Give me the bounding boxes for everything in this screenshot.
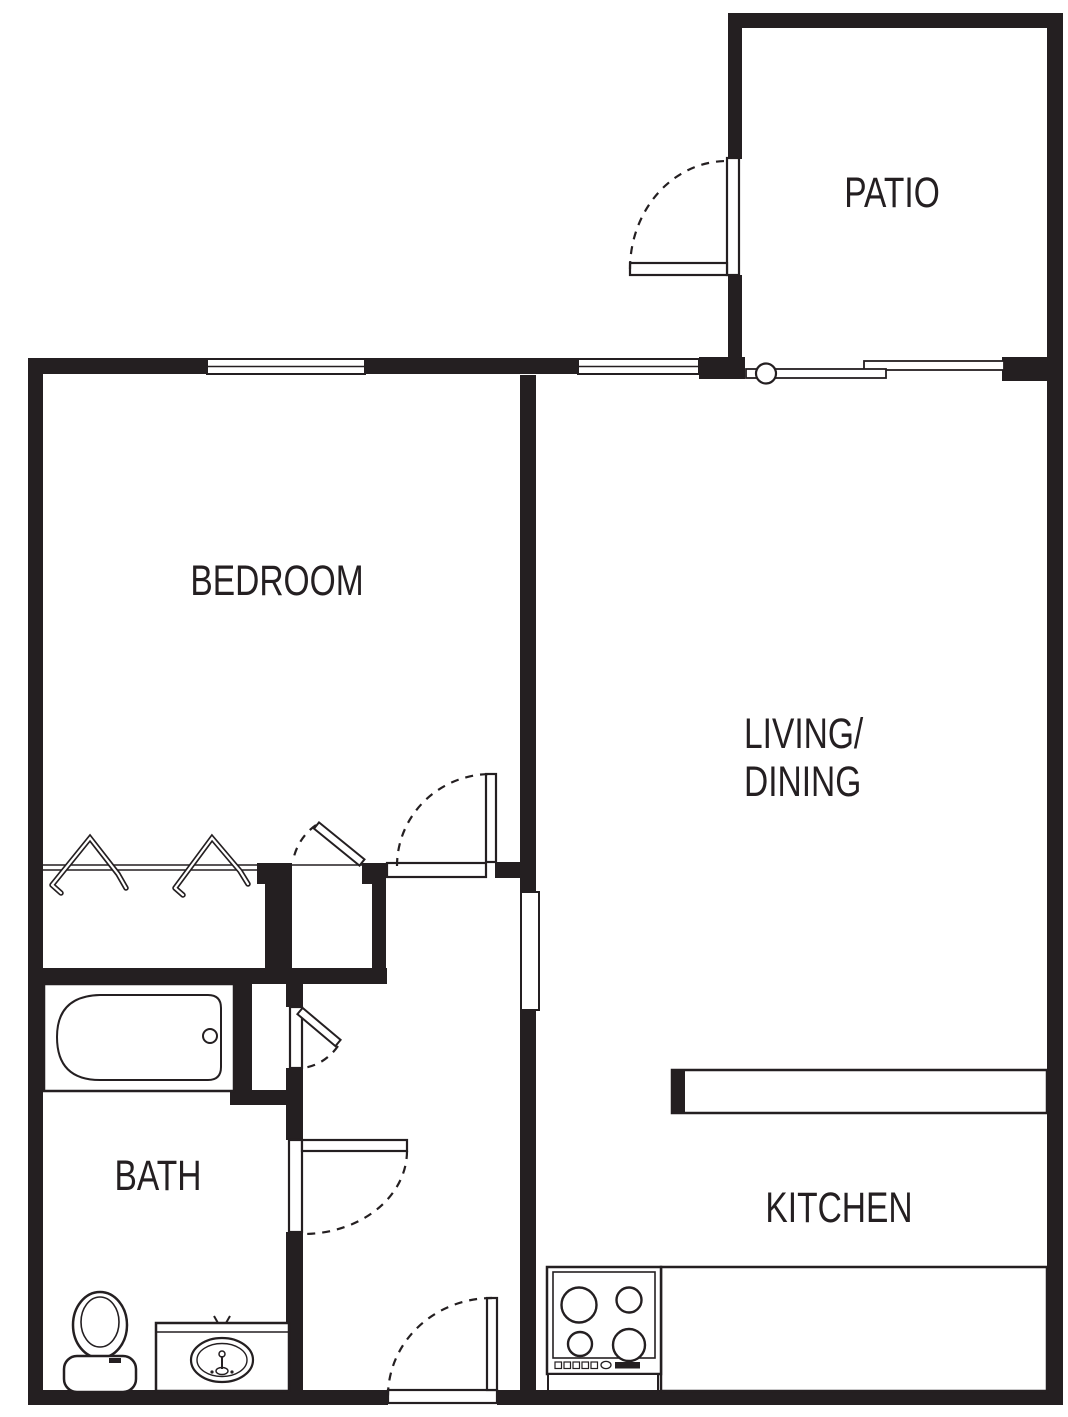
entry-door-open-leaf <box>630 263 727 275</box>
burner <box>562 1288 597 1323</box>
right-exterior-wall <box>1047 13 1063 1405</box>
patio-top-wall <box>728 13 1063 28</box>
stove-controls <box>555 1361 640 1368</box>
closet-right-wall <box>372 884 386 970</box>
toilet-tank <box>64 1356 136 1392</box>
left-exterior-wall <box>28 358 43 1405</box>
hall-door-closed-slab <box>388 1390 497 1403</box>
hall-wall-segment-a <box>286 984 303 1007</box>
burner <box>613 1329 645 1361</box>
patio-label: PATIO <box>844 169 940 217</box>
bedroom-living-divider-wall <box>520 375 536 1390</box>
bath-door-closed-slab <box>289 1140 302 1232</box>
living-dining-label-line2: DINING <box>744 758 861 806</box>
patio-left-wall-upper <box>728 28 742 159</box>
burner <box>617 1288 642 1313</box>
breakfast-bar-end-cap <box>672 1070 685 1113</box>
floor-plan-drawing: PATIO BEDROOM LIVING/ DINING BATH KITCHE… <box>0 0 1068 1417</box>
bedroom-door-stub-wall <box>495 862 520 878</box>
bedroom-window <box>207 359 365 374</box>
stove-drawer <box>548 1374 658 1391</box>
bedroom-door-closed-slab <box>387 863 486 877</box>
closet-right-jamb <box>362 863 386 884</box>
burner <box>568 1332 592 1356</box>
hall-door-open-leaf <box>487 1298 497 1390</box>
bedroom-door-open-leaf <box>486 774 496 862</box>
tub-drain <box>203 1029 217 1043</box>
sliding-door-right-block <box>1002 357 1047 381</box>
bath-door-open-leaf <box>302 1140 407 1151</box>
patio-left-wall-lower <box>728 275 742 360</box>
hall-wall-segment-b <box>286 1068 303 1140</box>
stove-cooktop <box>547 1267 661 1391</box>
top-wall-middle-segment <box>365 358 578 374</box>
bedroom-label: BEDROOM <box>190 557 363 605</box>
linen-closet-bottom-wall <box>230 1090 291 1105</box>
sliding-door-handle <box>756 364 776 384</box>
entry-door-closed-slab <box>727 158 739 275</box>
closet-left-wall <box>265 884 292 970</box>
closet-left-jamb <box>257 863 292 884</box>
top-wall-patio-junction-block <box>699 357 745 379</box>
wall-pocket-panel <box>521 892 539 1010</box>
top-wall-left-segment <box>28 358 207 374</box>
kitchen-label: KITCHEN <box>765 1184 912 1232</box>
floor-plan: PATIO BEDROOM LIVING/ DINING BATH KITCHE… <box>0 0 1068 1417</box>
bath-label: BATH <box>115 1152 202 1200</box>
bathtub <box>44 984 234 1091</box>
bath-top-wall <box>28 968 387 984</box>
living-dining-label-line1: LIVING/ <box>744 710 863 758</box>
kitchen-counter <box>661 1267 1047 1391</box>
tub-right-wall <box>234 984 252 1105</box>
toilet-flush-handle <box>109 1358 121 1363</box>
vanity-sink <box>156 1316 289 1391</box>
breakfast-bar <box>672 1070 1047 1113</box>
living-window <box>578 359 699 374</box>
